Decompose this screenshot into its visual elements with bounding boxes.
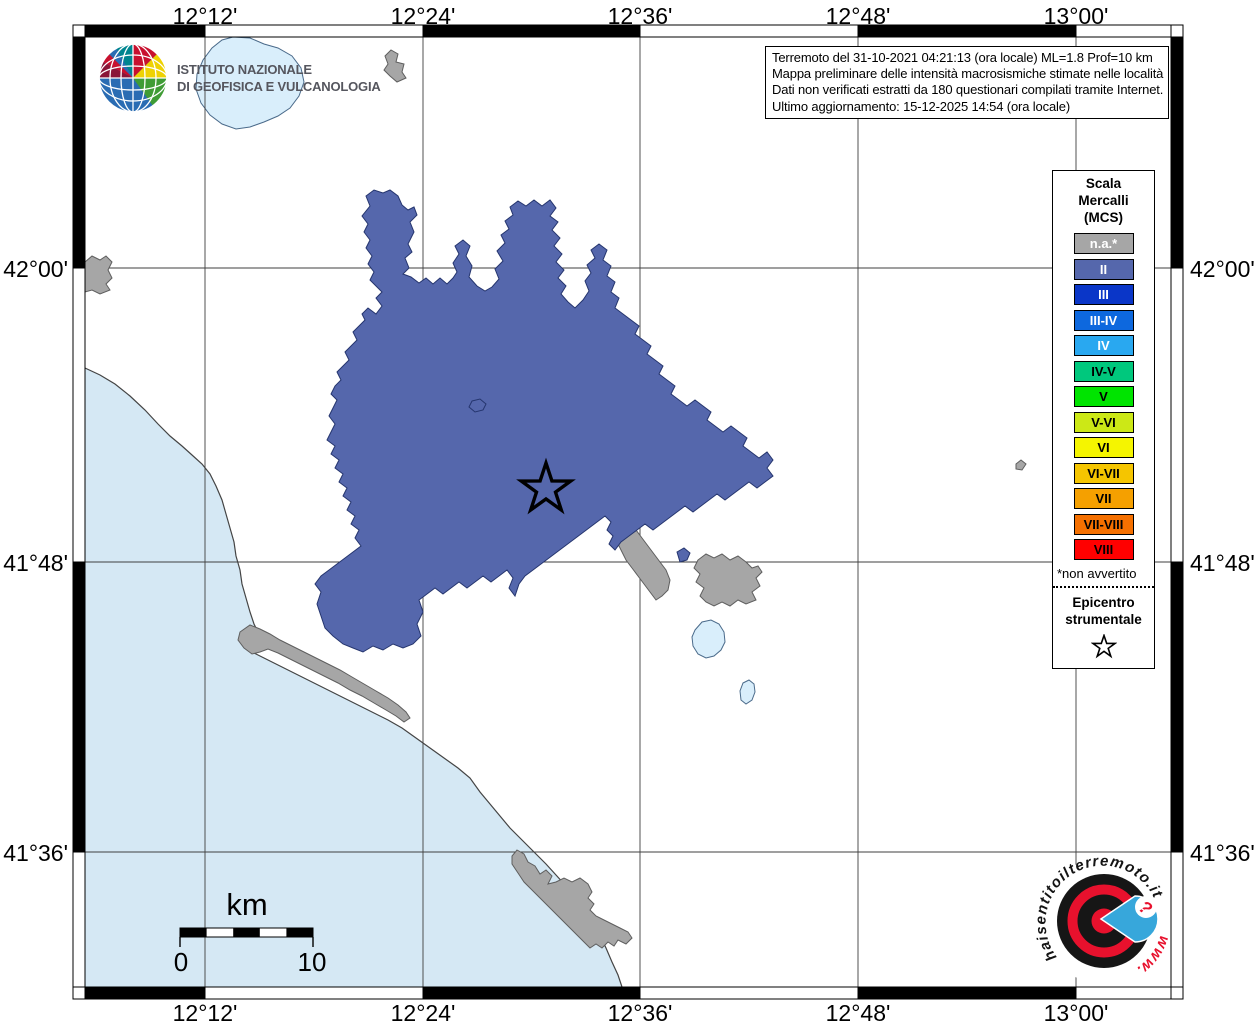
intensity-ii-fragment	[677, 548, 690, 562]
scale-bar-start: 0	[174, 947, 188, 977]
axis-label-bottom-3: 12°36'	[608, 1000, 673, 1024]
event-info-line2: Mappa preliminare delle intensità macros…	[772, 66, 1162, 82]
legend-title: Scala Mercalli (MCS)	[1053, 175, 1154, 226]
watermark-logo: ? haisentitoilterremoto.it www.	[1032, 853, 1173, 984]
legend-chip-iii: III	[1074, 284, 1134, 305]
legend-star-icon	[1091, 634, 1117, 660]
legend-chip-vi: VI	[1074, 437, 1134, 458]
axis-label-top-3: 12°36'	[608, 3, 673, 30]
legend-chip-v: V	[1074, 386, 1134, 407]
event-info-box: Terremoto del 31-10-2021 04:21:13 (ora l…	[765, 46, 1169, 119]
event-info-line3: Dati non verificati estratti da 180 ques…	[772, 82, 1162, 98]
axis-label-top-1: 12°12'	[173, 3, 238, 30]
na-patch-east-dot	[1016, 460, 1026, 470]
ingv-wordmark: ISTITUTO NAZIONALE DI GEOFISICA E VULCAN…	[177, 61, 381, 95]
scale-bar-end: 10	[298, 947, 327, 977]
ingv-wordmark-line2: DI GEOFISICA E VULCANOLOGIA	[177, 78, 381, 95]
legend-chip-vii: VII	[1074, 488, 1134, 509]
axis-label-bottom-2: 12°24'	[391, 1000, 456, 1024]
event-info-line4: Ultimo aggiornamento: 15-12-2025 14:54 (…	[772, 99, 1162, 115]
legend-chip-iii-iv: III-IV	[1074, 310, 1134, 331]
na-patch-north-islet	[384, 50, 406, 82]
macroseismic-map-page: ? haisentitoilterremoto.it www.	[0, 0, 1256, 1024]
axis-label-left-3: 41°36'	[2, 840, 68, 867]
axis-label-top-2: 12°24'	[391, 3, 456, 30]
axis-label-bottom-4: 12°48'	[826, 1000, 891, 1024]
legend-chip-viii: VIII	[1074, 539, 1134, 560]
lake-nemi	[740, 680, 755, 704]
axis-label-right-1: 42°00'	[1190, 256, 1255, 283]
legend-epicenter-line2: strumentale	[1053, 611, 1154, 628]
legend-epicenter-label: Epicentro strumentale	[1053, 594, 1154, 628]
axis-label-top-5: 13°00'	[1044, 3, 1109, 30]
axis-label-left-2: 41°48'	[2, 550, 68, 577]
legend-chip-na: n.a.*	[1074, 233, 1134, 254]
ingv-wordmark-line1: ISTITUTO NAZIONALE	[177, 61, 381, 78]
event-info-line1: Terremoto del 31-10-2021 04:21:13 (ora l…	[772, 50, 1162, 66]
axis-label-left-1: 42°00'	[2, 256, 68, 283]
legend-chip-ii: II	[1074, 259, 1134, 280]
axis-label-right-2: 41°48'	[1190, 550, 1255, 577]
scale-bar-unit: km	[226, 887, 267, 922]
axis-label-bottom-5: 13°00'	[1044, 1000, 1109, 1024]
axis-label-top-4: 12°48'	[826, 3, 891, 30]
legend-title-line1: Scala	[1053, 175, 1154, 192]
na-patch-left-edge	[85, 256, 112, 294]
legend-divider	[1053, 586, 1154, 588]
ingv-logo-icon	[95, 40, 171, 116]
legend-chip-iv-v: IV-V	[1074, 361, 1134, 382]
legend-chip-v-vi: V-VI	[1074, 412, 1134, 433]
legend-chip-iv: IV	[1074, 335, 1134, 356]
axis-label-right-3: 41°36'	[1190, 840, 1255, 867]
lake-albano	[692, 620, 725, 658]
legend-box: Scala Mercalli (MCS) n.a.* II III III-IV…	[1052, 170, 1155, 669]
legend-title-line3: (MCS)	[1053, 209, 1154, 226]
legend-title-line2: Mercalli	[1053, 192, 1154, 209]
legend-epicenter-line1: Epicentro	[1053, 594, 1154, 611]
axis-label-bottom-1: 12°12'	[173, 1000, 238, 1024]
legend-chip-vii-viii: VII-VIII	[1074, 514, 1134, 535]
legend-footnote: *non avvertito	[1057, 566, 1152, 581]
legend-chip-vi-vii: VI-VII	[1074, 463, 1134, 484]
